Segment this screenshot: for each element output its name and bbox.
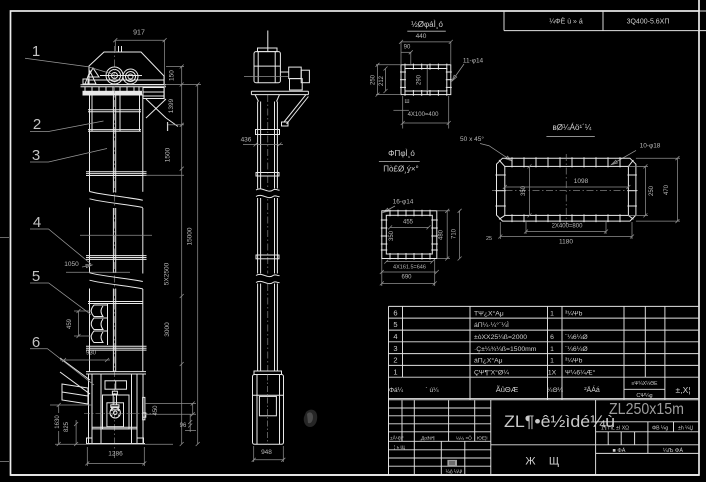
svg-text:825: 825 xyxy=(64,421,70,432)
svg-text:710: 710 xyxy=(452,228,458,239)
svg-text:Ш: Ш xyxy=(404,99,409,105)
svg-text:3: 3 xyxy=(393,344,397,353)
svg-text:930: 930 xyxy=(86,351,97,357)
svg-text:3: 3 xyxy=(32,147,40,164)
svg-text:6: 6 xyxy=(393,308,397,317)
svg-text:1286: 1286 xyxy=(108,451,123,458)
svg-text:450: 450 xyxy=(153,405,159,416)
svg-text:¼Θ¼: ¼Θ¼ xyxy=(547,387,563,394)
svg-text:1¶ ΠL ±I XΩ: 1¶ ΠL ±I XΩ xyxy=(601,426,629,432)
svg-text:СΨ¼g: СΨ¼g xyxy=(636,393,652,399)
svg-text:15000: 15000 xyxy=(187,227,194,245)
svg-text:вØ¼Áö¹´¼: вØ¼Áö¹´¼ xyxy=(553,123,592,132)
svg-text:Ψ¼6¼Æ°: Ψ¼6¼Æ° xyxy=(565,368,596,376)
svg-text:917: 917 xyxy=(133,30,145,37)
svg-text:½ØφáÌ¸ó: ½ØφáÌ¸ó xyxy=(411,20,443,29)
svg-text:1: 1 xyxy=(550,346,554,353)
svg-text:´ ú¼: ´ ú¼ xyxy=(425,387,439,394)
svg-text:■ ΦÁ: ■ ΦÁ xyxy=(613,447,626,454)
svg-text:1: 1 xyxy=(550,358,554,365)
svg-text:5: 5 xyxy=(393,320,397,329)
svg-text:440: 440 xyxy=(416,33,427,40)
svg-text:²ÄÁá: ²ÄÁá xyxy=(584,385,600,394)
svg-text:2: 2 xyxy=(393,356,397,365)
svg-text:4X100=400: 4X100=400 xyxy=(408,112,440,118)
svg-text:6: 6 xyxy=(550,334,554,341)
svg-text:250: 250 xyxy=(649,185,655,196)
svg-text:1399: 1399 xyxy=(168,98,175,113)
svg-text:¦ ь Щ: ¦ ь Щ xyxy=(394,444,405,450)
svg-text:212: 212 xyxy=(379,75,385,86)
svg-text:1: 1 xyxy=(393,367,397,376)
svg-text:1630: 1630 xyxy=(55,415,61,429)
svg-text:ЮЕ¦I: ЮЕ¦I xyxy=(477,436,488,442)
svg-text:³¼Ψb: ³¼Ψb xyxy=(565,358,583,365)
svg-text:96: 96 xyxy=(180,423,187,429)
svg-text:25: 25 xyxy=(486,236,492,242)
svg-text:350: 350 xyxy=(389,230,395,241)
svg-text:690: 690 xyxy=(401,275,412,281)
svg-text:¼ΦÈ ù » á: ¼ΦÈ ù » á xyxy=(549,17,583,26)
svg-text:459: 459 xyxy=(67,318,73,329)
svg-text:¼¼ ×Ö: ¼¼ ×Ö xyxy=(456,435,472,442)
svg-text:250: 250 xyxy=(371,74,377,85)
svg-text:3Q400-5.6ΧΠ: 3Q400-5.6ΧΠ xyxy=(627,19,670,26)
svg-text:3000: 3000 xyxy=(164,322,171,337)
svg-text:10-φ18: 10-φ18 xyxy=(640,143,661,150)
svg-text:ÇΨ¶"X°Ø¼: ÇΨ¶"X°Ø¼ xyxy=(474,368,509,376)
svg-text:290: 290 xyxy=(417,74,423,85)
svg-text:1098: 1098 xyxy=(574,178,589,185)
svg-text:470: 470 xyxy=(664,184,670,195)
svg-text:16-φ14: 16-φ14 xyxy=(393,199,414,206)
svg-text:±,Χ¦: ±,Χ¦ xyxy=(676,385,691,395)
svg-text:áΠ¼·¼°´¼Ì: áΠ¼·¼°´¼Ì xyxy=(474,320,509,329)
svg-text:4X161.5=646: 4X161.5=646 xyxy=(393,265,426,271)
svg-text:´¼6¼Ø: ´¼6¼Ø xyxy=(565,346,588,353)
svg-text:2X400=800: 2X400=800 xyxy=(552,224,584,230)
svg-text:±h ¼Џ: ±h ¼Џ xyxy=(678,426,693,432)
svg-text:1: 1 xyxy=(550,310,554,317)
svg-text:¸Доžé¶: ¸Доžé¶ xyxy=(420,436,436,442)
svg-text:´¼6¼Ø: ´¼6¼Ø xyxy=(565,334,588,341)
svg-text:ÃûΘÆ: ÃûΘÆ xyxy=(496,385,519,394)
svg-text:480: 480 xyxy=(439,229,445,240)
svg-text:5: 5 xyxy=(32,268,40,285)
svg-text:5Χ2500: 5Χ2500 xyxy=(164,262,171,285)
svg-text:150: 150 xyxy=(169,70,176,81)
svg-text:I: I xyxy=(166,119,170,134)
svg-text:1500: 1500 xyxy=(165,147,172,162)
svg-text:±òXΧ25¼ß=2000: ±òXΧ25¼ß=2000 xyxy=(474,334,527,341)
svg-text:Φá¼: Φá¼ xyxy=(389,387,404,394)
svg-text:ΦΠφÌ¸ó: ΦΠφÌ¸ó xyxy=(388,149,415,158)
svg-text:ΦΒ ¼g: ΦΒ ¼g xyxy=(652,426,668,432)
svg-text:4: 4 xyxy=(33,214,41,231)
svg-text:áΠ¿X°Aμ: áΠ¿X°Aμ xyxy=(474,357,503,365)
svg-text:³¼Ψb: ³¼Ψb xyxy=(565,310,583,317)
svg-text:Щ: Щ xyxy=(549,456,559,468)
svg-text:350: 350 xyxy=(521,185,527,196)
svg-text:¼Љ ΦÁ: ¼Љ ΦÁ xyxy=(663,447,683,454)
svg-text:1X: 1X xyxy=(548,369,557,376)
svg-text:2: 2 xyxy=(33,116,41,133)
svg-text:11-φ14: 11-φ14 xyxy=(463,58,484,65)
svg-text:1: 1 xyxy=(32,43,40,60)
svg-text:1180: 1180 xyxy=(559,239,573,246)
svg-text:Ж: Ж xyxy=(525,456,535,468)
svg-text:948: 948 xyxy=(261,449,272,456)
svg-text:ZL250x15m: ZL250x15m xyxy=(609,401,684,418)
svg-text:4: 4 xyxy=(393,332,397,341)
svg-text:·Ç±¼¾¼ß=1500mm: ·Ç±¼¾¼ß=1500mm xyxy=(474,346,537,353)
svg-text:50 x 45°: 50 x 45° xyxy=(460,135,484,143)
svg-text:436: 436 xyxy=(241,137,252,144)
svg-text:±ÅЧ¦Iº: ±ÅЧ¦Iº xyxy=(390,435,404,442)
svg-text:TΨ¿X°Aμ: TΨ¿X°Aμ xyxy=(474,309,504,317)
svg-text:Πò£Ø¸ý×°: Πò£Ø¸ý×° xyxy=(383,165,418,174)
svg-text:90: 90 xyxy=(404,45,411,51)
svg-text:455: 455 xyxy=(403,220,414,226)
svg-text:1050: 1050 xyxy=(64,261,79,268)
svg-text:≡Ψ¼Χ¼ΘE: ≡Ψ¼Χ¼ΘE xyxy=(632,381,659,387)
